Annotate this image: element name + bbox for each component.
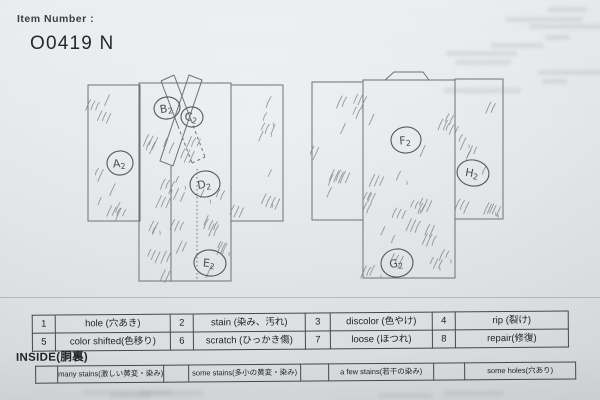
legend-section: 1 hole (穴あき) 2 stain (染み、汚れ) 3 discolor … [0, 308, 600, 393]
defect-marker-e2: E2 [193, 249, 227, 278]
defect-marker-d2: D2 [188, 169, 221, 199]
legend-num: 7 [305, 331, 330, 349]
svg-text:A2: A2 [112, 157, 126, 172]
defect-marker-a2: A2 [106, 150, 134, 176]
legend-label: rip (裂け) [455, 311, 568, 330]
defect-marker-f2: F2 [390, 126, 422, 155]
legend-label: discolor (色やけ) [330, 312, 432, 331]
legend-row-2: 5 color shifted(色移り) 6 scratch (ひっかき傷) 7… [32, 329, 568, 351]
legend-label: loose (ほつれ) [330, 330, 432, 349]
svg-text:C2: C2 [184, 110, 199, 126]
legend-num: 2 [170, 314, 193, 332]
inside-checkbox-cell [301, 364, 329, 381]
kimono-front-outline [88, 75, 283, 281]
defect-marker-b2: B2 [152, 95, 181, 121]
defect-marker-h2: H2 [455, 157, 491, 188]
svg-text:H2: H2 [464, 166, 480, 182]
inside-checkbox-cell [36, 366, 58, 383]
inside-option-label: a few stains(若干の染み) [329, 363, 434, 381]
defect-markers-back: F2H2G2 [379, 126, 491, 279]
inside-options-row: many stains(激しい黄変・染み) some stains(多小の黄変・… [36, 362, 576, 383]
inside-options-table: many stains(激しい黄変・染み) some stains(多小の黄変・… [35, 361, 576, 383]
inside-checkbox-cell [164, 365, 189, 382]
legend-label: hole (穴あき) [55, 314, 170, 333]
svg-text:E2: E2 [202, 256, 215, 271]
inside-checkbox-cell [434, 363, 465, 380]
svg-text:B2: B2 [159, 101, 174, 117]
legend-label: repair(修復) [455, 329, 568, 348]
inside-option-label: some stains(多小の黄変・染み) [189, 364, 301, 382]
legend-num: 8 [432, 330, 455, 348]
svg-text:F2: F2 [399, 134, 412, 149]
legend-num: 3 [305, 313, 330, 331]
legend-label: scratch (ひっかき傷) [193, 331, 305, 350]
inside-option-label: many stains(激しい黄変・染み) [58, 365, 164, 383]
legend-num: 4 [432, 312, 455, 330]
inside-section-title: INSIDE(胴裏) [16, 348, 88, 365]
svg-text:D2: D2 [196, 177, 211, 193]
legend-num: 6 [170, 332, 193, 350]
defect-legend-table: 1 hole (穴あき) 2 stain (染み、汚れ) 3 discolor … [32, 311, 569, 352]
defect-marker-g2: G2 [379, 247, 415, 279]
legend-num: 1 [32, 315, 55, 333]
legend-label: stain (染み、汚れ) [193, 313, 305, 332]
inside-option-label: some holes(穴あり) [465, 362, 576, 380]
